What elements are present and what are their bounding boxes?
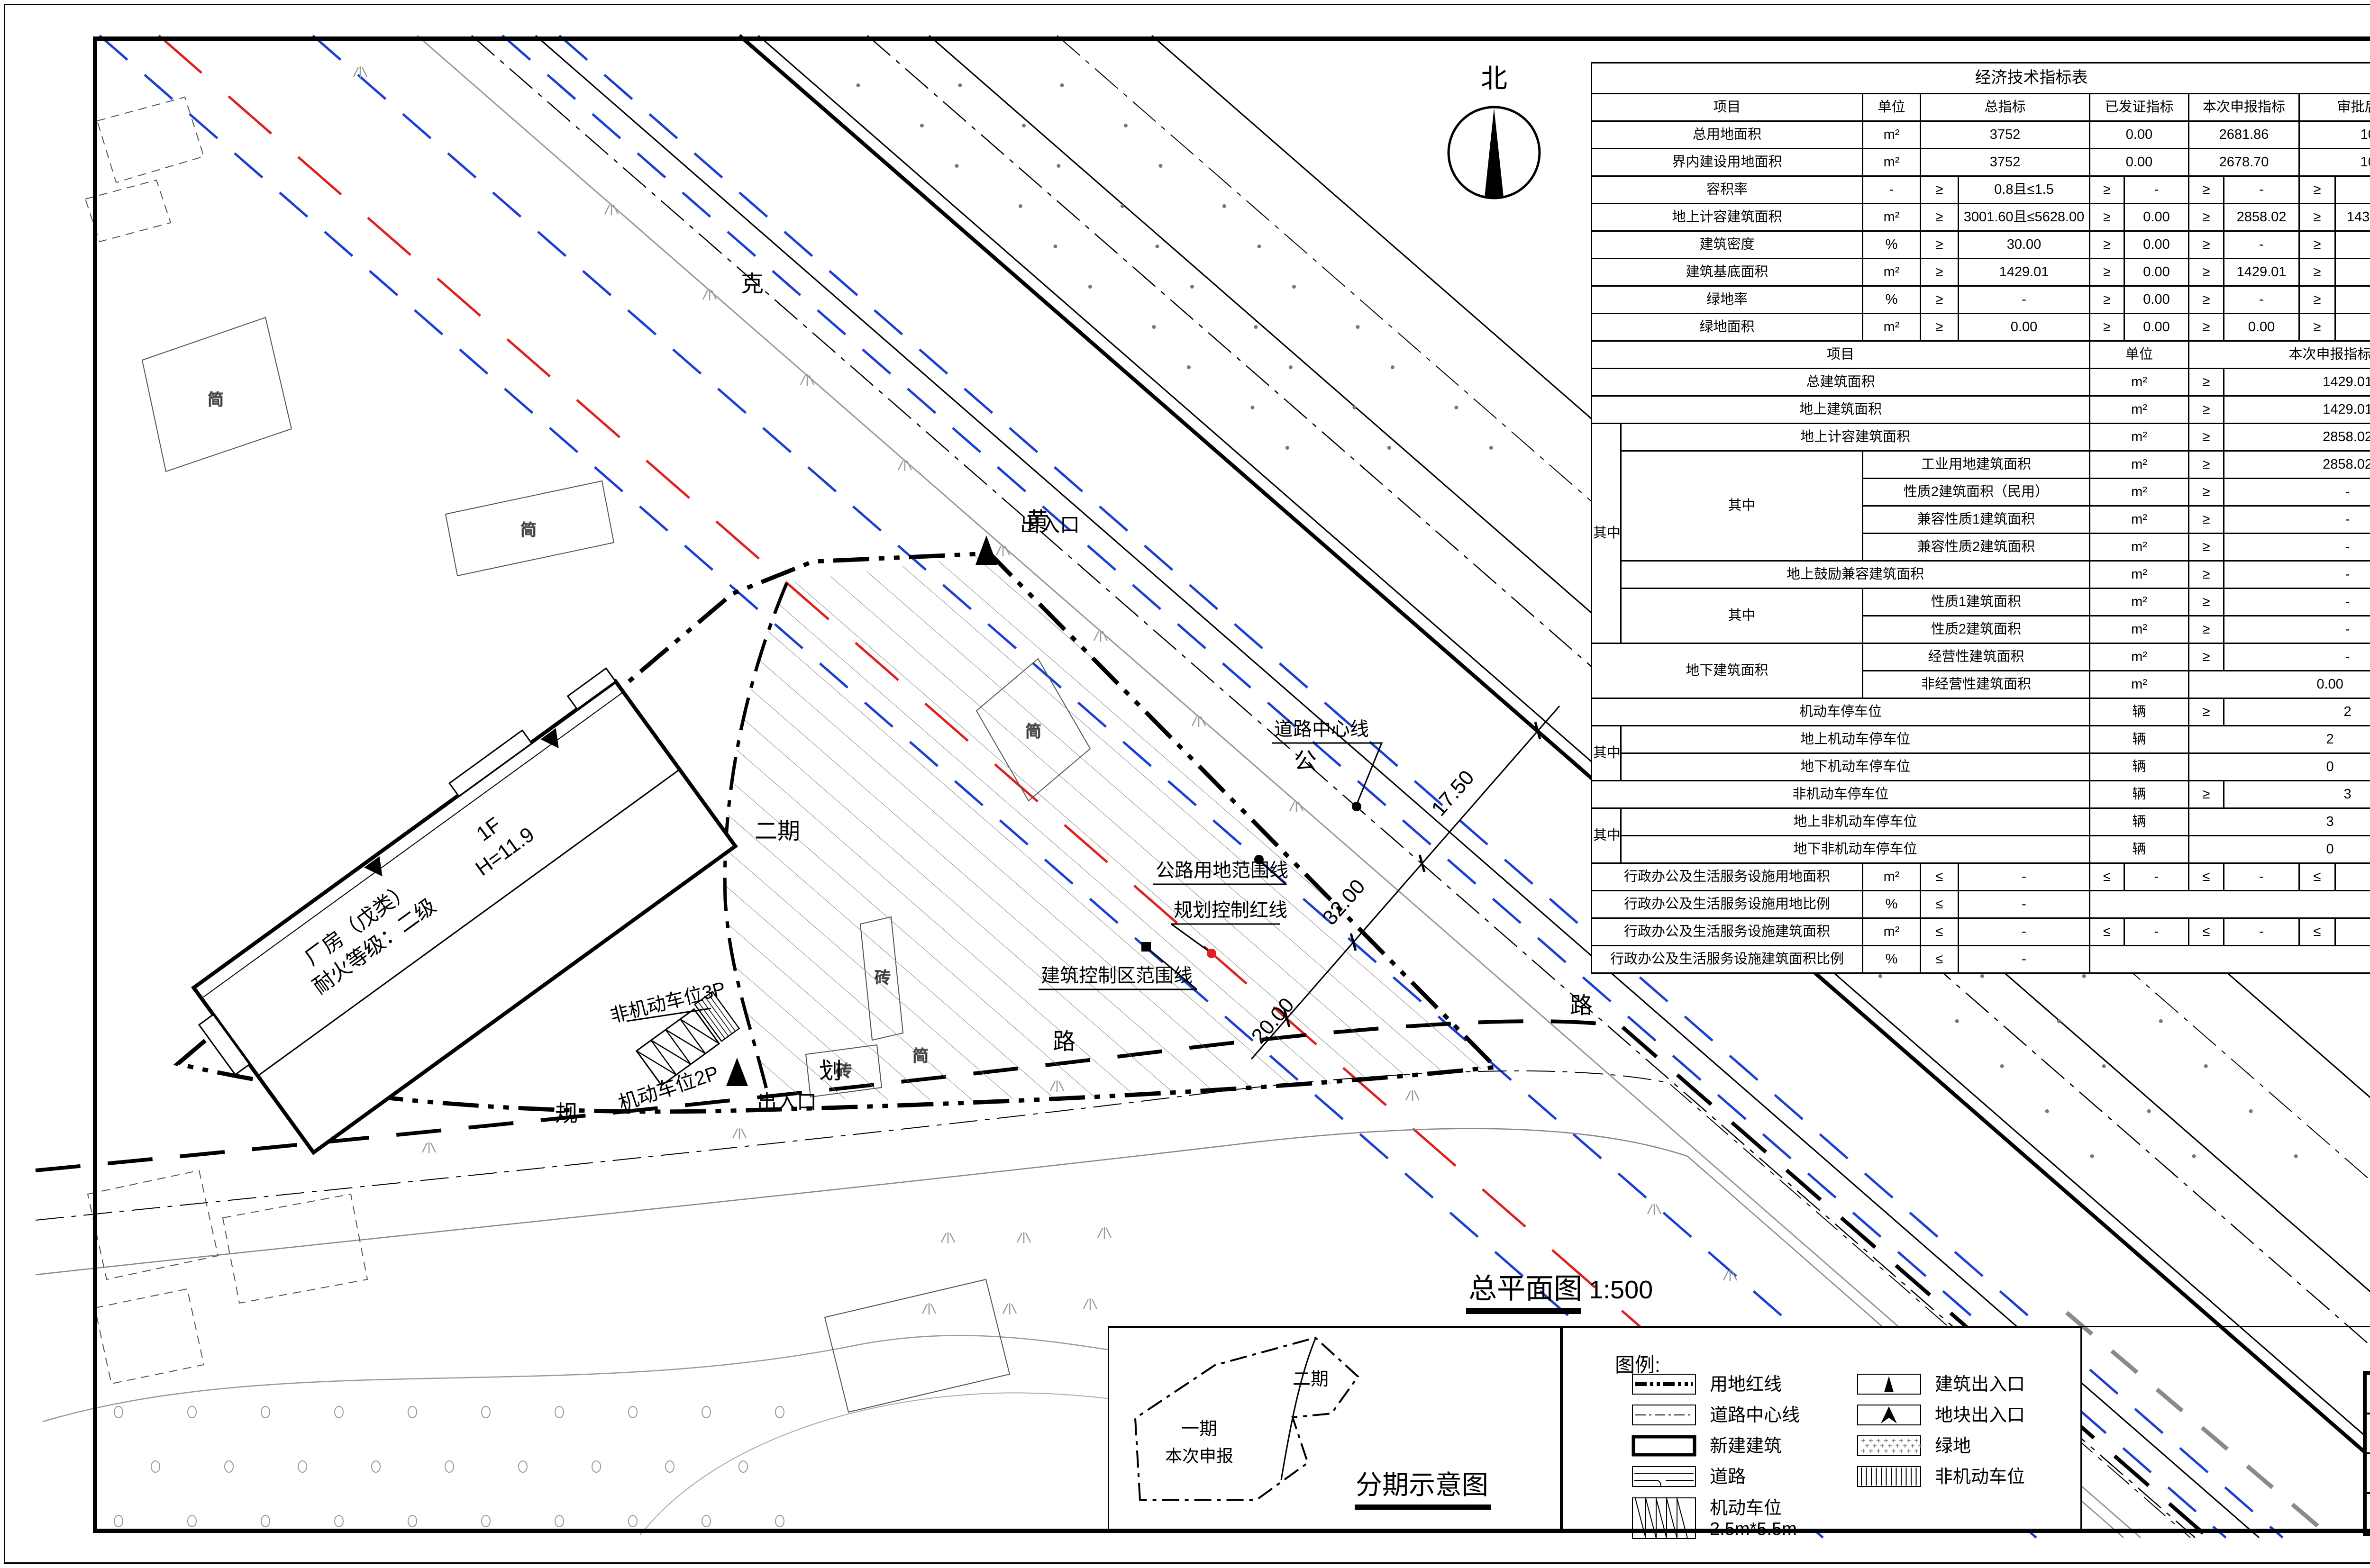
legend-item: 道路	[1632, 1466, 1800, 1489]
terrain-mark	[1094, 630, 1107, 642]
terrain-mark	[739, 1461, 747, 1472]
table-cell: 0	[2189, 753, 2370, 781]
table-cell: ≥	[2189, 396, 2224, 424]
table-cell: 地上计容建筑面积	[1592, 204, 1863, 231]
terrain-mark	[1387, 446, 1391, 450]
table-cell: ≥	[1921, 176, 1959, 204]
legend-item: 地块出入口	[1857, 1405, 2025, 1427]
table-cell: ≤	[2189, 918, 2224, 946]
table-cell: -	[1959, 891, 2090, 918]
table-cell: ≥	[2090, 231, 2124, 259]
table-cell: 行政办公及生活服务设施建筑面积比例	[1592, 946, 1863, 973]
table-cell: m²	[2090, 561, 2189, 589]
table-cell: 2	[2224, 698, 2370, 726]
terrain-mark	[1060, 83, 1064, 87]
table-cell: m²	[2090, 451, 2189, 479]
table-cell: 0	[2189, 836, 2370, 863]
table-cell: ≥	[2189, 314, 2224, 341]
table-cell: ≥	[2189, 561, 2224, 589]
road-centerline-icon	[1632, 1404, 1696, 1428]
terrain-mark	[225, 1461, 233, 1472]
bike-parking-icon	[1857, 1466, 1922, 1490]
table-cell: 1429.01	[2224, 259, 2299, 286]
north-label: 北	[1481, 63, 1507, 93]
table-cell: m²	[2090, 616, 2189, 644]
table-row: 其中性质1建筑面积m²≥-	[1592, 589, 2370, 616]
terrain-mark	[2090, 1154, 2094, 1158]
table-cell: 本次申报指标	[2189, 94, 2299, 121]
table-cell: 3	[2189, 808, 2370, 836]
terrain-mark	[1022, 124, 1026, 127]
terrain-mark	[955, 164, 958, 168]
table-cell: 0.00	[2090, 149, 2189, 176]
terrain-mark	[1250, 406, 1254, 409]
table-row: 容积率-≥0.8且≤1.5≥-≥-≥-	[1592, 176, 2370, 204]
plan-caption-text: 总平面图	[1468, 1273, 1582, 1305]
legend-item-label: 建筑出入口	[1935, 1375, 2025, 1396]
table-cell: %	[1863, 946, 1921, 973]
table-cell: 行政办公及生活服务设施用地比例	[1592, 891, 1863, 918]
terrain-mark	[408, 1406, 417, 1418]
table-cell: 2858.02	[2224, 204, 2299, 231]
table-cell: 辆	[2090, 836, 2189, 863]
legend-item-label: 非机动车位	[1935, 1467, 2025, 1488]
legend-item: 用地红线	[1632, 1374, 1800, 1396]
table-row: 行政办公及生活服务设施建筑面积m²≤-≤-≤-≤-	[1592, 918, 2370, 946]
terrain-mark	[920, 124, 924, 127]
table-cell: 非机动车停车位	[1592, 781, 2090, 808]
terrain-mark	[1121, 204, 1124, 208]
table-cell: 性质2建筑面积（民用）	[1863, 479, 2090, 506]
table-cell: 1429.01	[2224, 369, 2370, 396]
table-row: 绿地率%≥-≥0.00≥-≥-	[1592, 286, 2370, 314]
terrain-mark	[261, 1515, 270, 1527]
terrain-mark	[1489, 446, 1493, 450]
terrain-mark	[151, 1461, 160, 1472]
table-row: 建筑密度%≥30.00≥0.00≥-≥-	[1592, 231, 2370, 259]
terrain-mark	[1352, 406, 1356, 409]
table-row: 总建筑面积m²≥1429.01	[1592, 369, 2370, 396]
table-cell: 项目	[1592, 94, 1863, 121]
terrain-mark	[519, 1461, 527, 1472]
table-cell: ≥	[1921, 286, 1959, 314]
table-cell: 单位	[1863, 94, 1921, 121]
table-cell: -	[2124, 918, 2189, 946]
table-cell: ≥	[2189, 231, 2224, 259]
table-cell: 绿地率	[1592, 286, 1863, 314]
terrain-mark	[188, 1406, 196, 1418]
terrain-mark	[856, 83, 860, 87]
table-cell: ≥	[2090, 204, 2124, 231]
table-cell: m²	[1863, 314, 1921, 341]
table-cell: ≤	[1921, 863, 1959, 891]
legend-item: 绿地	[1857, 1435, 2025, 1458]
entrance-bottom-label: 出入口	[757, 1091, 817, 1113]
table-cell: 地上计容建筑面积	[1621, 424, 2090, 451]
table-cell: m²	[2090, 424, 2189, 451]
table-cell: -	[1959, 863, 2090, 891]
planning-red-label: 规划控制红线	[1174, 900, 1287, 921]
table-cell: -	[2335, 176, 2370, 204]
building-entrance-icon	[1857, 1373, 1922, 1397]
table-cell: ≥	[2189, 451, 2224, 479]
table-cell: 其中	[1621, 451, 1863, 561]
phase1-note: 本次申报	[1165, 1446, 1233, 1466]
table-cell: 项目	[1592, 341, 2090, 369]
table-cell: ≥	[2189, 204, 2224, 231]
terrain-mark	[1187, 365, 1191, 369]
terrain-mark	[1292, 285, 1296, 289]
table-cell: m²	[1863, 863, 1921, 891]
terrain-mark	[2000, 1064, 2004, 1068]
terrain-mark	[1088, 285, 1092, 289]
terrain-mark	[1057, 164, 1060, 168]
terrain-mark	[1391, 365, 1395, 369]
svg-text:划: 划	[819, 1059, 842, 1084]
table-row: 行政办公及生活服务设施用地面积m²≤-≤-≤-≤-	[1592, 863, 2370, 891]
terrain-mark	[1190, 285, 1194, 289]
table-cell: 行政办公及生活服务设施建筑面积	[1592, 918, 1863, 946]
table-row: 非机动车停车位辆≥3	[1592, 781, 2370, 808]
dim-17: 17.50	[1427, 766, 1479, 820]
table-cell: %	[1863, 891, 1921, 918]
table-row: 界内建设用地面积m²37520.002678.701070.14	[1592, 149, 2370, 176]
building-control-label: 建筑控制区范围线	[1041, 965, 1193, 986]
terrain-mark	[702, 1515, 711, 1527]
terrain-mark	[941, 1232, 955, 1243]
table-cell: ≥	[2299, 204, 2335, 231]
table-row: 建筑基底面积m²≥1429.01≥0.00≥1429.01≥-	[1592, 259, 2370, 286]
title-block-label: 电 话	[2366, 1414, 2370, 1453]
svg-text:路: 路	[1570, 993, 1593, 1018]
table-cell: 2	[2189, 726, 2370, 753]
terrain-mark	[702, 1406, 711, 1418]
green-icon	[1857, 1435, 1922, 1459]
table-cell: 辆	[2090, 698, 2189, 726]
table-cell: 0.00	[2224, 314, 2299, 341]
table-cell: 0.00	[2124, 231, 2189, 259]
table-cell: 0.00	[1959, 314, 2090, 341]
table-cell: -	[2335, 314, 2370, 341]
table-cell: ≤	[2090, 863, 2124, 891]
table-row: 经济技术指标表	[1592, 63, 2370, 94]
terrain-mark	[1155, 245, 1159, 248]
terrain-mark	[1158, 164, 1162, 168]
table-cell: -	[2224, 561, 2370, 589]
terrain-mark	[1878, 974, 1882, 978]
terrain-mark	[1955, 1019, 1959, 1023]
table-cell: ≤	[1921, 918, 1959, 946]
table-cell	[2090, 891, 2370, 918]
table-row: 地下机动车停车位辆0	[1592, 753, 2370, 781]
svg-text:路: 路	[1053, 1029, 1076, 1054]
table-row: 行政办公及生活服务设施建筑面积比例%≤-	[1592, 946, 2370, 973]
terrain-mark	[605, 204, 618, 215]
table-cell: m²	[2090, 644, 2189, 671]
table-cell: 辆	[2090, 808, 2189, 836]
table-cell: -	[2335, 863, 2370, 891]
table-cell: 地上非机动车停车位	[1621, 808, 2090, 836]
table-cell: m²	[2090, 396, 2189, 424]
title-block-label: 建设单位	[2366, 1374, 2370, 1414]
table-cell: m²	[2090, 534, 2189, 561]
table-cell: 1429.01	[1959, 259, 2090, 286]
table-cell: 地下建筑面积	[1592, 644, 1863, 698]
table-cell: 3	[2224, 781, 2370, 808]
terrain-mark	[958, 83, 962, 87]
table-row: 地上计容建筑面积m²≥3001.60且≤5628.00≥0.00≥2858.02…	[1592, 204, 2370, 231]
building-label: 简	[520, 521, 537, 539]
table-cell: -	[2124, 176, 2189, 204]
table-row: 地上鼓励兼容建筑面积m²≥-	[1592, 561, 2370, 589]
terrain-mark	[482, 1515, 490, 1527]
legend-item: 建筑出入口	[1857, 1374, 2025, 1396]
table-cell: 3752	[1921, 149, 2090, 176]
terrain-mark	[372, 1461, 380, 1472]
table-cell: ≤	[2299, 918, 2335, 946]
table-cell: 机动车停车位	[1592, 698, 2090, 726]
terrain-mark	[2102, 1064, 2106, 1068]
table-cell: %	[1863, 286, 1921, 314]
phasing-sketch: 二期 一期 本次申报 分期示意图	[1135, 1338, 1491, 1510]
table-cell	[2090, 946, 2370, 973]
legend-item-label: 道路中心线	[1710, 1405, 1800, 1426]
table-cell: 性质1建筑面积	[1863, 589, 2090, 616]
terrain-mark	[422, 1142, 436, 1153]
table-cell: 已发证指标	[2090, 94, 2189, 121]
road-icon	[1632, 1466, 1696, 1490]
table-cell: m²	[2090, 479, 2189, 506]
table-cell: ≥	[2189, 176, 2224, 204]
terrain-mark	[898, 460, 912, 471]
terrain-mark	[1017, 1232, 1030, 1243]
table-cell: 其中	[1592, 726, 1621, 781]
terrain-mark	[482, 1406, 490, 1418]
table-cell: ≥	[2189, 369, 2224, 396]
legend-item-label: 用地红线	[1710, 1375, 1782, 1396]
economic-indicator-table: 经济技术指标表项目单位总指标已发证指标本次申报指标审批后剩余指标总用地面积m²3…	[1591, 62, 2370, 974]
drawing-sheet: { "north": {"label": "北"}, "plan_title":…	[0, 0, 2370, 1568]
table-cell: ≥	[2189, 698, 2224, 726]
legend-item-label: 道路	[1710, 1467, 1746, 1488]
new-building-icon	[1632, 1435, 1696, 1459]
table-cell: 0.00	[2124, 314, 2189, 341]
terrain-mark	[733, 1128, 746, 1139]
terrain-mark	[2204, 1064, 2208, 1068]
table-cell: ≥	[2299, 259, 2335, 286]
table-cell: -	[2224, 534, 2370, 561]
terrain-mark	[2159, 1019, 2163, 1023]
table-cell: 其中	[1592, 808, 1621, 863]
building-label: 简	[208, 391, 224, 409]
terrain-mark	[665, 1461, 674, 1472]
table-cell: ≥	[2090, 314, 2124, 341]
terrain-mark	[354, 66, 367, 78]
terrain-mark	[1285, 446, 1289, 450]
terrain-mark	[629, 1406, 637, 1418]
svg-text:黄: 黄	[1026, 508, 1049, 534]
table-row: 地下建筑面积经营性建筑面积m²≥-	[1592, 644, 2370, 671]
table-cell: 0.00	[2124, 259, 2189, 286]
legend-item: 新建建筑	[1632, 1435, 1800, 1458]
table-cell: 总用地面积	[1592, 121, 1863, 149]
title-block-label: 设计单位	[2366, 1453, 2370, 1493]
table-row: 地下非机动车停车位辆0	[1592, 836, 2370, 863]
table-cell: m²	[2090, 369, 2189, 396]
table-cell: ≥	[2189, 616, 2224, 644]
table-row: 其中工业用地建筑面积m²≥2858.02	[1592, 451, 2370, 479]
table-cell: 0.00	[2189, 671, 2370, 698]
terrain-mark	[261, 1406, 270, 1418]
legend-item: 道路中心线	[1632, 1405, 1800, 1427]
table-cell: 3001.60且≤5628.00	[1959, 204, 2090, 231]
table-cell: -	[2224, 644, 2370, 671]
phasing-diagram: 二期 一期 本次申报 分期示意图	[1108, 1327, 1561, 1530]
table-cell: -	[2224, 616, 2370, 644]
terrain-mark	[1053, 245, 1057, 248]
table-cell: 143.58且≤2769.98	[2335, 204, 2370, 231]
red-line-icon	[1632, 1373, 1696, 1397]
table-cell: -	[2224, 918, 2299, 946]
terrain-mark	[1084, 1298, 1097, 1310]
north-arrow: 北	[1449, 63, 1540, 198]
terrain-mark	[1723, 1270, 1737, 1281]
terrain-mark	[188, 1515, 196, 1527]
terrain-mark	[114, 1406, 123, 1418]
table-cell: 辆	[2090, 781, 2189, 808]
table-cell: -	[2224, 231, 2299, 259]
table-row: 总用地面积m²37520.002681.861070.14	[1592, 121, 2370, 149]
table-cell: 其中	[1592, 424, 1621, 644]
terrain-mark	[801, 374, 814, 386]
table-cell: 地上鼓励兼容建筑面积	[1621, 561, 2090, 589]
legend-item: 非机动车位	[1857, 1466, 2025, 1489]
table-cell: ≥	[2299, 176, 2335, 204]
table-cell: 2678.70	[2189, 149, 2299, 176]
table-cell: 总指标	[1921, 94, 2090, 121]
table-cell: -	[2124, 863, 2189, 891]
table-cell: ≥	[1921, 204, 1959, 231]
terrain-mark	[1124, 124, 1128, 127]
table-cell: 建筑基底面积	[1592, 259, 1863, 286]
table-cell: ≤	[2299, 863, 2335, 891]
legend-left-column: 用地红线道路中心线新建建筑道路机动车位2.5m*5.5m	[1632, 1374, 1800, 1550]
table-cell: 2858.02	[2224, 451, 2370, 479]
terrain-mark	[592, 1461, 601, 1472]
table-cell: ≥	[2189, 479, 2224, 506]
parking-icon	[1632, 1497, 1696, 1542]
legend-right-column: 建筑出入口地块出入口绿地非机动车位	[1857, 1374, 2025, 1497]
table-cell: ≥	[1921, 259, 1959, 286]
table-cell: 经济技术指标表	[1592, 63, 2370, 94]
terrain-mark	[2147, 1109, 2151, 1113]
terrain-mark	[1254, 325, 1258, 329]
legend-item: 机动车位2.5m*5.5m	[1632, 1497, 1800, 1541]
table-cell: 地下非机动车停车位	[1621, 836, 2090, 863]
title-block-label: 电 话	[2366, 1493, 2370, 1533]
legend-item-label: 地块出入口	[1935, 1405, 2025, 1426]
table-row: 项目单位本次申报指标	[1592, 341, 2370, 369]
terrain-mark	[408, 1515, 417, 1527]
terrain-mark	[335, 1515, 343, 1527]
table-cell: 0.8且≤1.5	[1959, 176, 2090, 204]
terrain-mark	[555, 1515, 564, 1527]
table-cell: 建筑密度	[1592, 231, 1863, 259]
terrain-mark	[1152, 325, 1156, 329]
terrain-mark	[1098, 1227, 1111, 1239]
terrain-mark	[629, 1515, 637, 1527]
plan-caption-scale: 1:500	[1589, 1276, 1653, 1304]
terrain-mark	[1192, 716, 1205, 727]
table-cell: ≥	[2299, 231, 2335, 259]
table-cell: m²	[1863, 121, 1921, 149]
terrain-mark	[1290, 801, 1303, 812]
table-cell: ≥	[2189, 589, 2224, 616]
table-cell: -	[2335, 231, 2370, 259]
centerline-label: 道路中心线	[1274, 719, 1369, 740]
terrain-mark	[1257, 245, 1261, 248]
table-cell: 性质2建筑面积	[1863, 616, 2090, 644]
table-cell: ≤	[2189, 863, 2224, 891]
table-cell: 1070.14	[2299, 121, 2370, 149]
table-cell: 2858.02	[2224, 424, 2370, 451]
phase1-mini-label: 一期	[1181, 1419, 1217, 1439]
table-cell: 地上机动车停车位	[1621, 726, 2090, 753]
table-cell: ≥	[2090, 176, 2124, 204]
table-cell: 地上建筑面积	[1592, 396, 2090, 424]
terrain-mark	[335, 1406, 343, 1418]
table-row: 项目单位总指标已发证指标本次申报指标审批后剩余指标	[1592, 94, 2370, 121]
table-cell: ≥	[2090, 259, 2124, 286]
table-cell: 经营性建筑面积	[1863, 644, 2090, 671]
table-cell: 0.00	[2124, 204, 2189, 231]
table-cell: -	[2335, 918, 2370, 946]
table-cell: 0.00	[2090, 121, 2189, 149]
table-cell: ≥	[2189, 424, 2224, 451]
phase2-label: 二期	[755, 819, 800, 844]
table-cell: ≤	[1921, 891, 1959, 918]
terrain-mark	[2082, 974, 2086, 978]
table-cell: -	[1959, 286, 2090, 314]
table-cell: 界内建设用地面积	[1592, 149, 1863, 176]
table-cell: m²	[1863, 259, 1921, 286]
table-cell: ≤	[2090, 918, 2124, 946]
terrain-mark	[922, 1303, 936, 1314]
table-cell: m²	[1863, 149, 1921, 176]
table-cell: ≥	[2189, 781, 2224, 808]
bottom-strip-divider	[1108, 1326, 2370, 1327]
phase2-hatch-area	[725, 553, 1495, 1100]
table-cell: m²	[2090, 589, 2189, 616]
table-cell: 行政办公及生活服务设施用地面积	[1592, 863, 1863, 891]
table-cell: 辆	[2090, 726, 2189, 753]
table-cell: ≥	[2090, 286, 2124, 314]
table-cell: -	[2335, 259, 2370, 286]
title-block: 建设单位 天津市蓟州区上仓镇梁庄子村村民委员会 电 话 13920283886 …	[2363, 1371, 2370, 1536]
table-cell: 工业用地建筑面积	[1863, 451, 2090, 479]
terrain-mark	[1003, 1303, 1016, 1314]
terrain-mark	[1019, 204, 1022, 208]
svg-text:克: 克	[741, 272, 764, 297]
terrain-mark	[298, 1461, 307, 1472]
table-cell: -	[2335, 286, 2370, 314]
table-cell: 其中	[1621, 589, 1863, 644]
table-cell: -	[2224, 176, 2299, 204]
terrain-mark	[1454, 406, 1458, 409]
terrain-mark	[996, 545, 1010, 556]
table-cell: 审批后剩余指标	[2299, 94, 2370, 121]
table-cell: -	[2224, 286, 2299, 314]
